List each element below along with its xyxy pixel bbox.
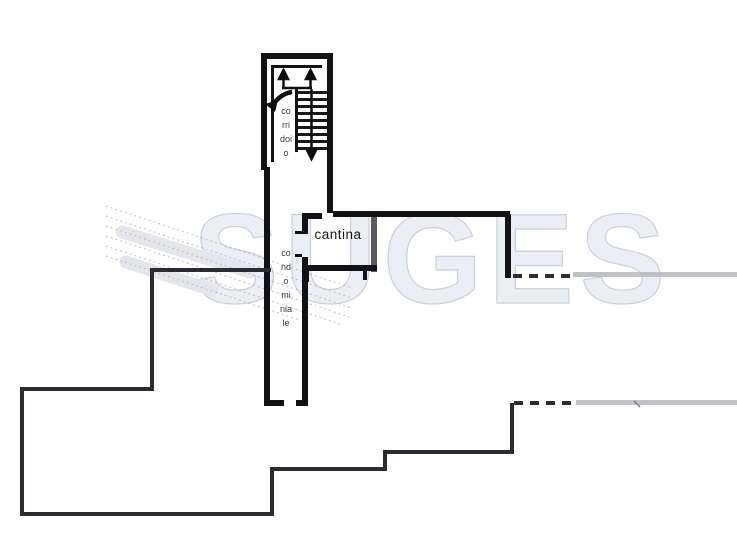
corridor-label-word1: corridoio xyxy=(280,104,292,160)
corridor-wall-left xyxy=(264,167,270,405)
outline-wall-v1 xyxy=(150,268,154,391)
stair-step xyxy=(298,126,327,129)
cantina-tick-bottom-left xyxy=(305,271,309,282)
cantina-wall-right xyxy=(371,217,377,272)
cantina-room-label: cantina xyxy=(306,227,370,242)
stair-step xyxy=(298,91,327,94)
floorplan-canvas: SUGES xyxy=(0,0,737,552)
corridor-label-word2: condominiale xyxy=(280,246,292,330)
stair-step xyxy=(298,105,327,108)
stair-wall-top xyxy=(261,53,333,59)
cut-edge-upper xyxy=(573,272,737,277)
dashed-wall-upper xyxy=(513,274,571,278)
stair-step xyxy=(298,112,327,115)
stair-inner-line-top xyxy=(271,65,322,68)
stair-step xyxy=(298,147,327,150)
cantina-door-jamb-top xyxy=(295,231,302,234)
cantina-door-jamb-bottom xyxy=(295,254,302,257)
outline-wall-bottom xyxy=(20,512,274,516)
outline-wall-h3 xyxy=(270,467,387,471)
stair-step xyxy=(298,98,327,101)
right-wall-upper xyxy=(505,214,511,278)
stair-step xyxy=(298,119,327,122)
top-wall-long xyxy=(333,211,510,217)
stair-step xyxy=(298,140,327,143)
outline-wall-v2 xyxy=(20,387,24,516)
outline-wall-h1 xyxy=(150,268,271,272)
stair-step xyxy=(298,133,327,136)
cantina-tick-bottom-right xyxy=(363,271,367,280)
outline-wall-h4 xyxy=(383,450,514,454)
dashed-wall-lower xyxy=(514,401,574,405)
stair-wall-left xyxy=(261,53,267,170)
outline-wall-h2 xyxy=(20,387,153,391)
outline-wall-v3 xyxy=(270,467,274,516)
stair-inner-line-left xyxy=(271,65,274,162)
stair-wall-right xyxy=(327,53,333,213)
corridor-foot-left xyxy=(264,400,284,406)
corridor-foot-right xyxy=(296,400,308,406)
top-wall-left-segment xyxy=(302,213,322,219)
outline-wall-v5 xyxy=(510,403,514,454)
cut-edge-lower xyxy=(576,400,737,405)
